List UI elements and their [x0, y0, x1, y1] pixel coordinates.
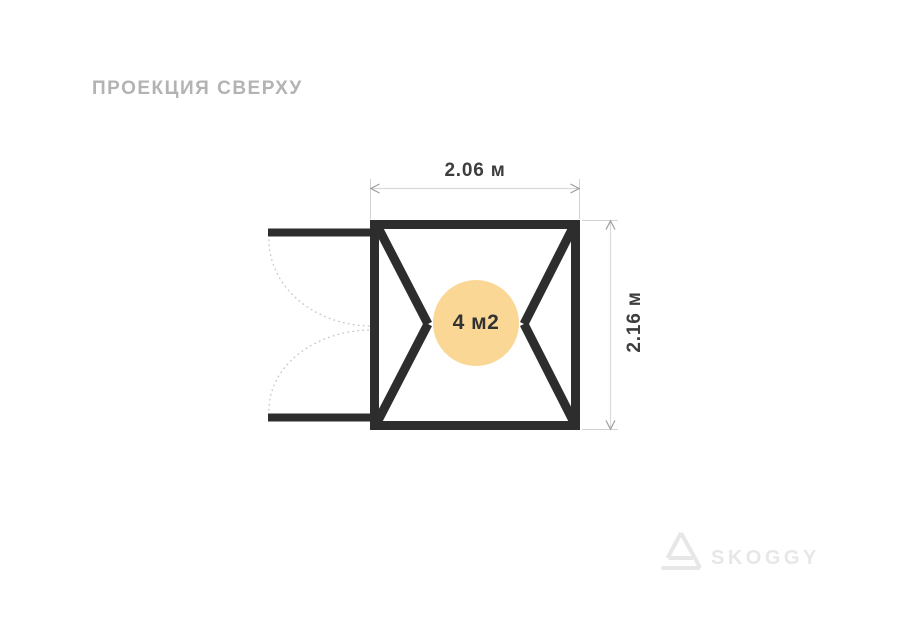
- brace-top-right: [524, 227, 574, 325]
- skoggy-triangle-logo-icon: [660, 529, 702, 571]
- height-dimension-label: 2.16 м: [624, 247, 646, 397]
- logo-edge-left: [668, 533, 682, 558]
- logo-text: SKOGGY: [711, 547, 820, 570]
- door-leaf-bottom: [268, 414, 375, 422]
- door-swing-arc-bottom: [269, 330, 372, 410]
- door-swing-arc-top: [269, 240, 372, 326]
- area-label: 4 м2: [416, 311, 536, 335]
- logo-edge-right: [681, 533, 696, 560]
- brace-bottom-right: [524, 324, 574, 422]
- width-dimension-line: [371, 179, 580, 219]
- page: { "page": { "title": "ПРОЕКЦИЯ СВЕРХУ", …: [0, 0, 900, 643]
- brace-top-left: [378, 227, 429, 325]
- door-leaf-top: [268, 229, 375, 237]
- width-dimension-label: 2.06 м: [375, 160, 575, 182]
- height-dimension-line: [582, 221, 618, 430]
- brace-bottom-left: [378, 324, 429, 422]
